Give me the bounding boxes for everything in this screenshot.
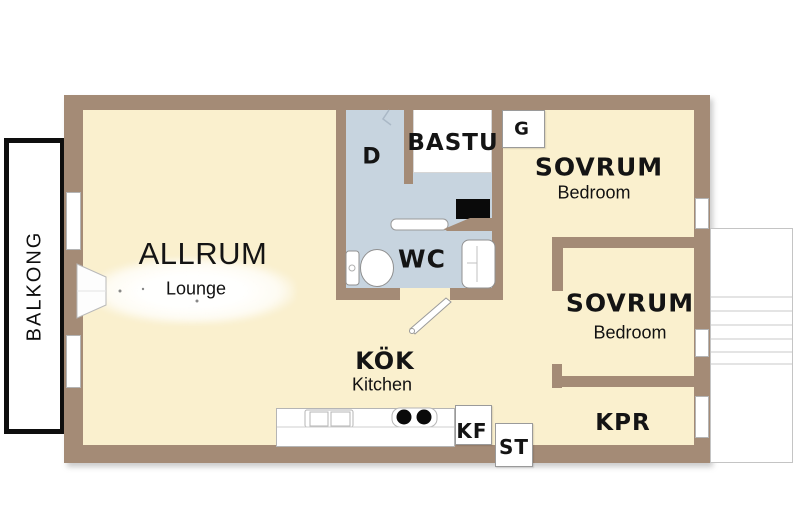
cleaning-closet-label: ST <box>499 435 529 459</box>
wardrobe-label: G <box>514 119 530 140</box>
interior-wall <box>336 288 400 300</box>
window-icon <box>66 335 81 388</box>
interior-wall <box>552 237 563 291</box>
kitchen-label-en: Kitchen <box>352 375 412 396</box>
window-icon <box>695 396 709 438</box>
allrum-label: ALLRUM <box>139 236 268 272</box>
window-icon <box>695 198 709 229</box>
washing-machine-icon <box>456 199 490 219</box>
interior-wall <box>336 110 346 300</box>
bedroom1-label: SOVRUM <box>535 153 663 182</box>
staircase-icon <box>711 229 793 463</box>
sauna-label: BASTU <box>407 130 498 156</box>
interior-wall <box>552 237 710 248</box>
kpr-label: KPR <box>595 410 650 436</box>
bedroom2-label: SOVRUM <box>566 289 694 318</box>
floor-plan: BALKONG <box>0 0 795 530</box>
interior-wall <box>552 376 694 387</box>
allrum-label-en: Lounge <box>166 279 226 300</box>
balcony-label: BALKONG <box>23 231 46 342</box>
kitchen-counter <box>276 408 455 447</box>
balcony-area: BALKONG <box>4 138 65 434</box>
kitchen-label: KÖK <box>355 347 415 375</box>
fridge-freezer-label: KF <box>456 419 487 443</box>
bedroom1-label-en: Bedroom <box>557 183 630 204</box>
interior-wall <box>450 288 503 300</box>
shower-label: D <box>362 145 381 170</box>
window-icon <box>695 329 709 357</box>
bedroom2-label-en: Bedroom <box>593 323 666 344</box>
window-icon <box>66 192 81 250</box>
wc-label: WC <box>398 245 446 274</box>
